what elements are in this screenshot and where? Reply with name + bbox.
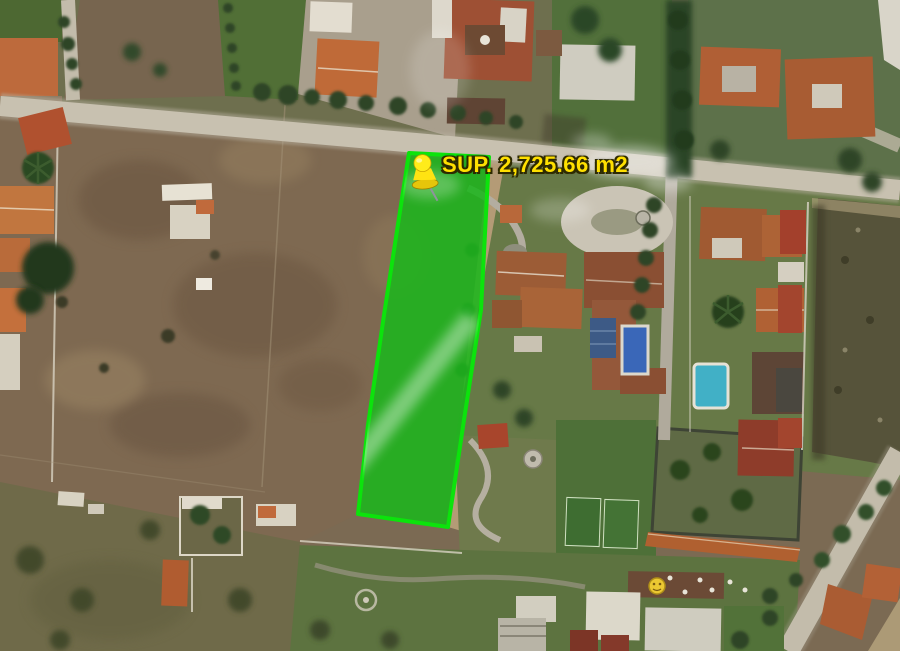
- satellite-imagery: [0, 0, 900, 651]
- satellite-map-viewport[interactable]: SUP. 2,725.66 m2: [0, 0, 900, 651]
- area-label: SUP. 2,725.66 m2: [442, 152, 628, 178]
